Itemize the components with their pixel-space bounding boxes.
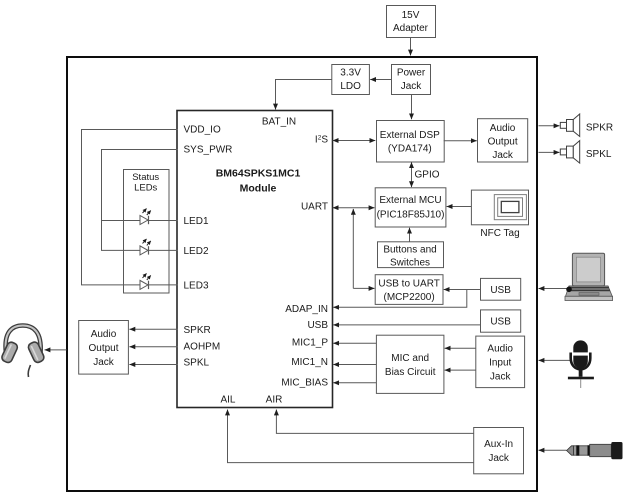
svg-text:SPKL: SPKL (184, 358, 210, 369)
svg-text:(PIC18F85J10): (PIC18F85J10) (377, 210, 445, 221)
svg-text:UART: UART (301, 202, 328, 213)
svg-text:Buttons and: Buttons and (383, 245, 436, 256)
svg-text:Power: Power (397, 68, 426, 79)
svg-text:USB: USB (490, 317, 511, 328)
svg-text:ADAP_IN: ADAP_IN (285, 304, 328, 315)
svg-text:BAT_IN: BAT_IN (262, 117, 296, 128)
svg-text:I2S: I2S (315, 134, 328, 145)
svg-text:SPKR: SPKR (184, 325, 211, 336)
svg-text:LEDs: LEDs (134, 183, 157, 194)
svg-text:MIC_BIAS: MIC_BIAS (281, 377, 328, 388)
svg-text:Jack: Jack (401, 81, 423, 92)
svg-text:Output: Output (488, 137, 518, 148)
svg-text:NFC Tag: NFC Tag (480, 228, 519, 239)
svg-text:External MCU: External MCU (379, 195, 441, 206)
svg-text:Audio: Audio (487, 343, 513, 354)
svg-text:BM64SPKS1MC1: BM64SPKS1MC1 (216, 168, 301, 180)
svg-text:Aux-In: Aux-In (484, 439, 513, 450)
svg-text:LDO: LDO (340, 81, 361, 92)
svg-text:Output: Output (88, 343, 118, 354)
svg-text:SPKR: SPKR (586, 123, 613, 134)
svg-text:LED2: LED2 (184, 246, 209, 257)
svg-text:External DSP: External DSP (380, 130, 440, 141)
svg-text:Input: Input (489, 357, 511, 368)
svg-text:USB: USB (490, 285, 511, 296)
svg-text:GPIO: GPIO (415, 170, 440, 181)
svg-text:Jack: Jack (488, 453, 510, 464)
svg-text:LED3: LED3 (184, 281, 209, 292)
svg-text:VDD_IO: VDD_IO (184, 124, 221, 135)
svg-text:LED1: LED1 (184, 216, 209, 227)
svg-text:AOHPM: AOHPM (184, 342, 221, 353)
svg-text:Audio: Audio (91, 329, 117, 340)
svg-text:3.3V: 3.3V (340, 68, 361, 79)
svg-text:USB: USB (307, 320, 328, 331)
svg-text:Jack: Jack (93, 357, 115, 368)
svg-text:Status: Status (132, 172, 159, 183)
svg-text:USB to UART: USB to UART (378, 279, 440, 290)
svg-text:SYS_PWR: SYS_PWR (184, 144, 233, 155)
svg-text:Module: Module (240, 183, 277, 195)
svg-text:AIL: AIL (220, 395, 235, 406)
svg-text:MIC1_P: MIC1_P (292, 337, 328, 348)
svg-text:Jack: Jack (490, 371, 512, 382)
svg-text:MIC and: MIC and (391, 353, 429, 364)
svg-text:(YDA174): (YDA174) (388, 144, 432, 155)
svg-text:Switches: Switches (390, 258, 430, 269)
svg-text:SPKL: SPKL (586, 149, 612, 160)
svg-text:Audio: Audio (490, 123, 516, 134)
svg-text:(MCP2200): (MCP2200) (384, 292, 435, 303)
svg-text:15V: 15V (402, 10, 420, 21)
svg-text:MIC1_N: MIC1_N (291, 357, 328, 368)
svg-text:Bias Circuit: Bias Circuit (385, 367, 436, 378)
svg-text:AIR: AIR (266, 395, 283, 406)
svg-text:Jack: Jack (492, 150, 514, 161)
svg-text:Adapter: Adapter (393, 23, 429, 34)
